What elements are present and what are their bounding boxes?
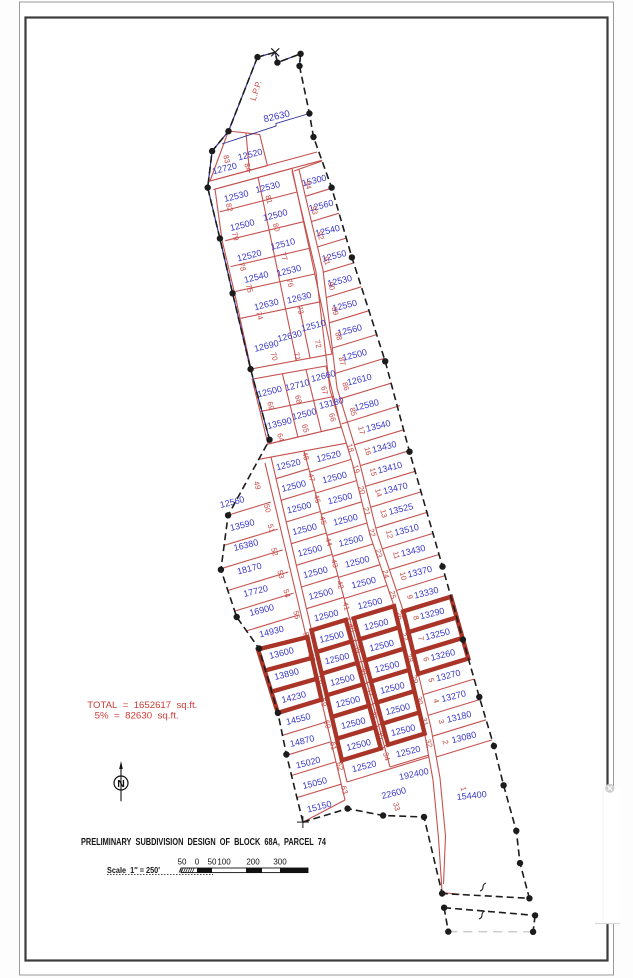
svg-text:N: N bbox=[117, 778, 125, 790]
svg-text:TOTAL = 1652617 sq.ft.: TOTAL = 1652617 sq.ft. bbox=[87, 700, 197, 710]
svg-text:PRELIMINARY SUBDIVISION DESI: PRELIMINARY SUBDIVISION DESIGN OF BLOCK … bbox=[81, 837, 326, 848]
svg-text:50: 50 bbox=[208, 858, 217, 867]
svg-text:0: 0 bbox=[195, 858, 200, 867]
svg-text:50: 50 bbox=[178, 858, 187, 867]
svg-text:Scale 1″ = 250′: Scale 1″ = 250′ bbox=[107, 865, 160, 875]
svg-text:200: 200 bbox=[246, 858, 260, 867]
svg-text:300: 300 bbox=[273, 858, 287, 867]
svg-text:5% = 82630 sq.ft.: 5% = 82630 sq.ft. bbox=[95, 711, 179, 721]
svg-text:100: 100 bbox=[217, 858, 231, 867]
